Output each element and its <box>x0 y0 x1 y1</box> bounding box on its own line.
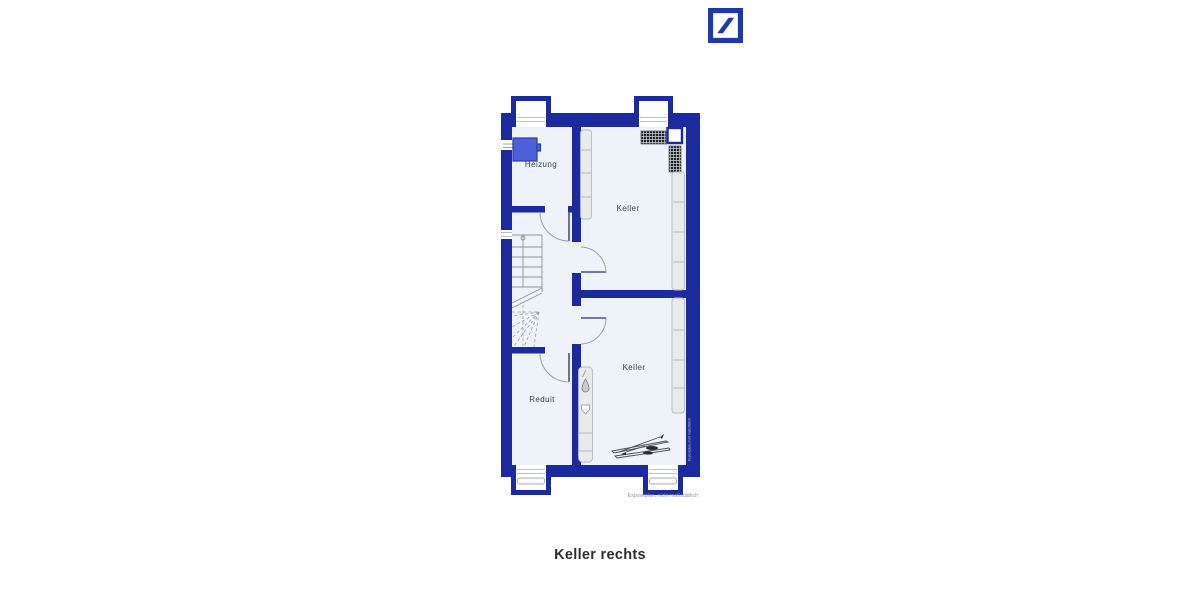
duct-strip-right-bottom <box>672 298 685 413</box>
vertical-watermark: Exposéplan, nicht maßstäblich <box>688 418 692 461</box>
db-logo <box>708 8 743 43</box>
wall-niche-box <box>668 128 683 143</box>
plan-caption: Keller rechts <box>0 547 1200 563</box>
floor-plan: Heizung Keller Keller Reduit Exposéplan,… <box>495 88 707 508</box>
page: Heizung Keller Keller Reduit Exposéplan,… <box>0 0 1200 600</box>
room-label-reduit: Reduit <box>529 395 555 404</box>
chimney-hatch-horizontal <box>641 131 666 144</box>
room-label-keller-top: Keller <box>617 204 640 213</box>
service-shaft <box>579 367 593 462</box>
disclaimer-text: Exposéplan, nicht maßstäblich <box>628 493 698 499</box>
room-label-keller-bottom: Keller <box>623 363 646 372</box>
duct-strip-left <box>581 130 592 219</box>
db-slash-icon <box>708 8 743 43</box>
room-label-heizung: Heizung <box>525 160 557 169</box>
duct-strip-right-top <box>672 172 685 290</box>
chimney-hatch-vertical <box>669 146 681 172</box>
